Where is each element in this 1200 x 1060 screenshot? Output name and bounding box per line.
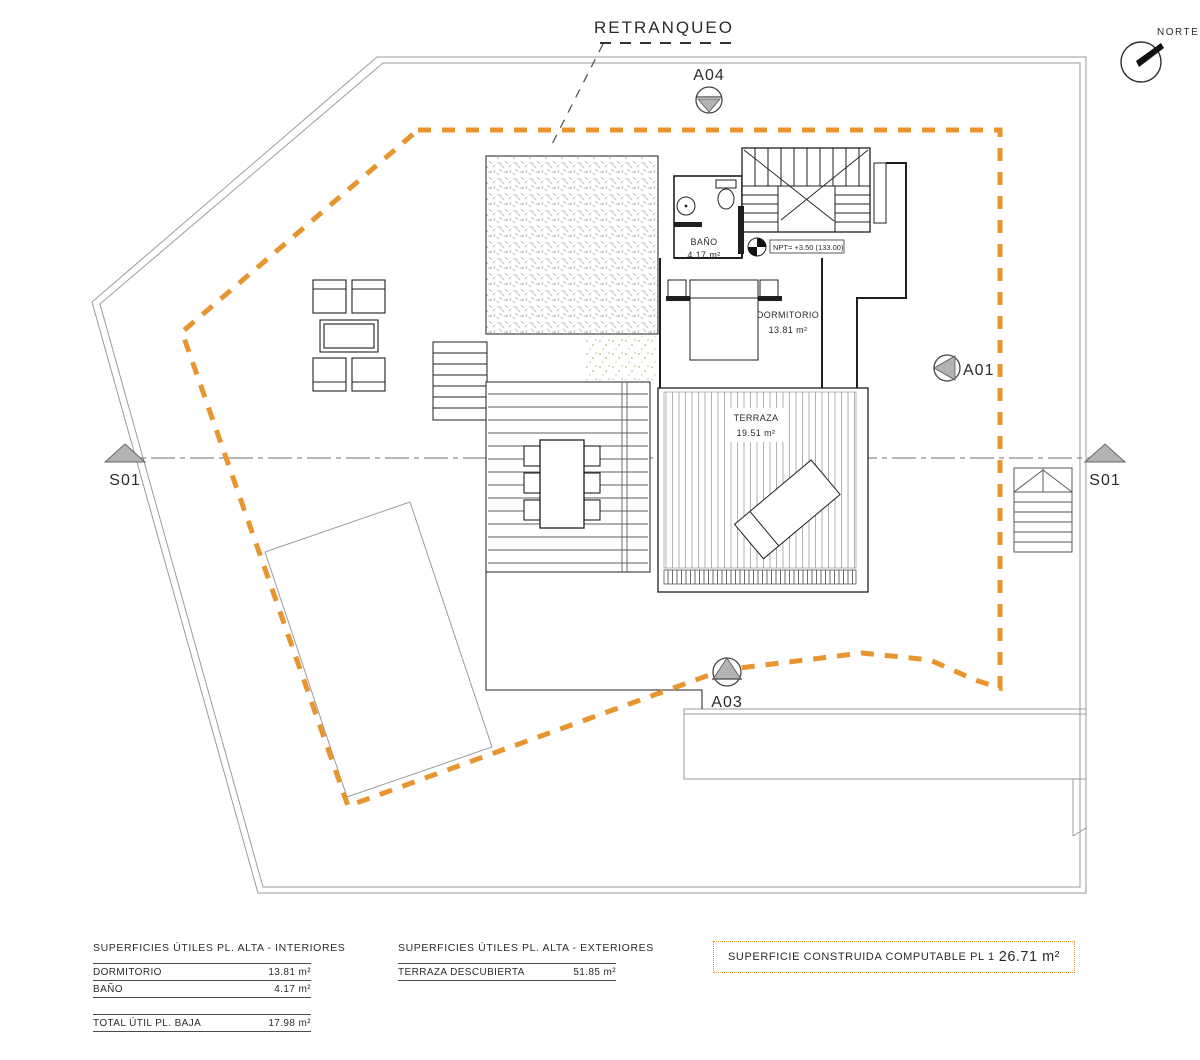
marker-a03: A03	[711, 658, 742, 711]
marker-s01-right-label: S01	[1089, 472, 1120, 489]
lounge-furniture	[313, 280, 385, 391]
terrace-railing	[664, 570, 856, 584]
table-row: BAÑO 4.17 m²	[93, 981, 311, 998]
row-value: 4.17 m²	[274, 984, 311, 995]
marker-s01-left-label: S01	[109, 472, 140, 489]
lower-building-outline	[684, 709, 1086, 836]
table-row: TERRAZA DESCUBIERTA 51.85 m²	[398, 964, 616, 981]
bano-area: 4.17 m²	[687, 250, 720, 260]
total-label: TOTAL ÚTIL PL. BAJA	[93, 1018, 201, 1029]
marker-s01-right-icon	[1085, 444, 1125, 462]
computable-area-box: SUPERFICIE CONSTRUIDA COMPUTABLE PL 1 26…	[713, 941, 1075, 973]
table-exteriores: SUPERFICIES ÚTILES PL. ALTA - EXTERIORES…	[398, 942, 616, 981]
table-interiores: SUPERFICIES ÚTILES PL. ALTA - INTERIORES…	[93, 942, 311, 1032]
level-value: NPT= +3.50 (133.00)	[773, 243, 844, 252]
computable-label: SUPERFICIE CONSTRUIDA COMPUTABLE PL 1	[728, 951, 995, 963]
gravel-area	[486, 156, 658, 334]
table-exteriores-title: SUPERFICIES ÚTILES PL. ALTA - EXTERIORES	[398, 942, 616, 954]
marker-a01: A01	[934, 355, 994, 381]
row-label: BAÑO	[93, 984, 123, 995]
floor-plan-drawing: BAÑO 4.17 m² DORMITORIO 13.81 m² TERRAZA…	[0, 0, 1200, 1060]
terraza-label: TERRAZA	[734, 413, 779, 423]
terraza-area: 19.51 m²	[737, 428, 776, 438]
shaft	[874, 163, 886, 223]
level-marker: NPT= +3.50 (133.00)	[748, 238, 844, 256]
floor-plan-sheet: { "labels": { "retranqueo": "RETRANQUEO"…	[0, 0, 1200, 1060]
exterior-stair-right	[1014, 468, 1072, 552]
marker-a03-label: A03	[711, 694, 742, 711]
computable-value: 26.71 m²	[999, 949, 1060, 965]
table-total-row: TOTAL ÚTIL PL. BAJA 17.98 m²	[93, 1014, 311, 1032]
side-steps	[433, 342, 487, 420]
north-compass: NORTE	[1121, 27, 1199, 82]
table-row: DORMITORIO 13.81 m²	[93, 964, 311, 981]
bed-icon	[666, 280, 782, 360]
north-label: NORTE	[1157, 27, 1199, 38]
pool-outline	[265, 502, 492, 797]
marker-a04-label: A04	[693, 67, 724, 84]
retranqueo-title: RETRANQUEO	[594, 18, 734, 37]
house-walls	[313, 148, 906, 709]
marker-a01-label: A01	[963, 362, 994, 379]
bano-label: BAÑO	[690, 237, 717, 247]
table-interiores-title: SUPERFICIES ÚTILES PL. ALTA - INTERIORES	[93, 942, 311, 954]
row-value: 13.81 m²	[268, 967, 311, 978]
marker-s01-left: S01	[105, 444, 145, 489]
marker-a04: A04	[693, 67, 724, 113]
total-value: 17.98 m²	[268, 1018, 311, 1029]
planting-area	[584, 336, 656, 380]
row-label: TERRAZA DESCUBIERTA	[398, 967, 525, 978]
dining-set	[524, 440, 600, 528]
dormitorio-label: DORMITORIO	[757, 310, 819, 320]
marker-s01-left-icon	[105, 444, 145, 462]
row-label: DORMITORIO	[93, 967, 162, 978]
dormitorio-area: 13.81 m²	[769, 325, 808, 335]
marker-s01-right: S01	[1085, 444, 1125, 489]
row-value: 51.85 m²	[573, 967, 616, 978]
